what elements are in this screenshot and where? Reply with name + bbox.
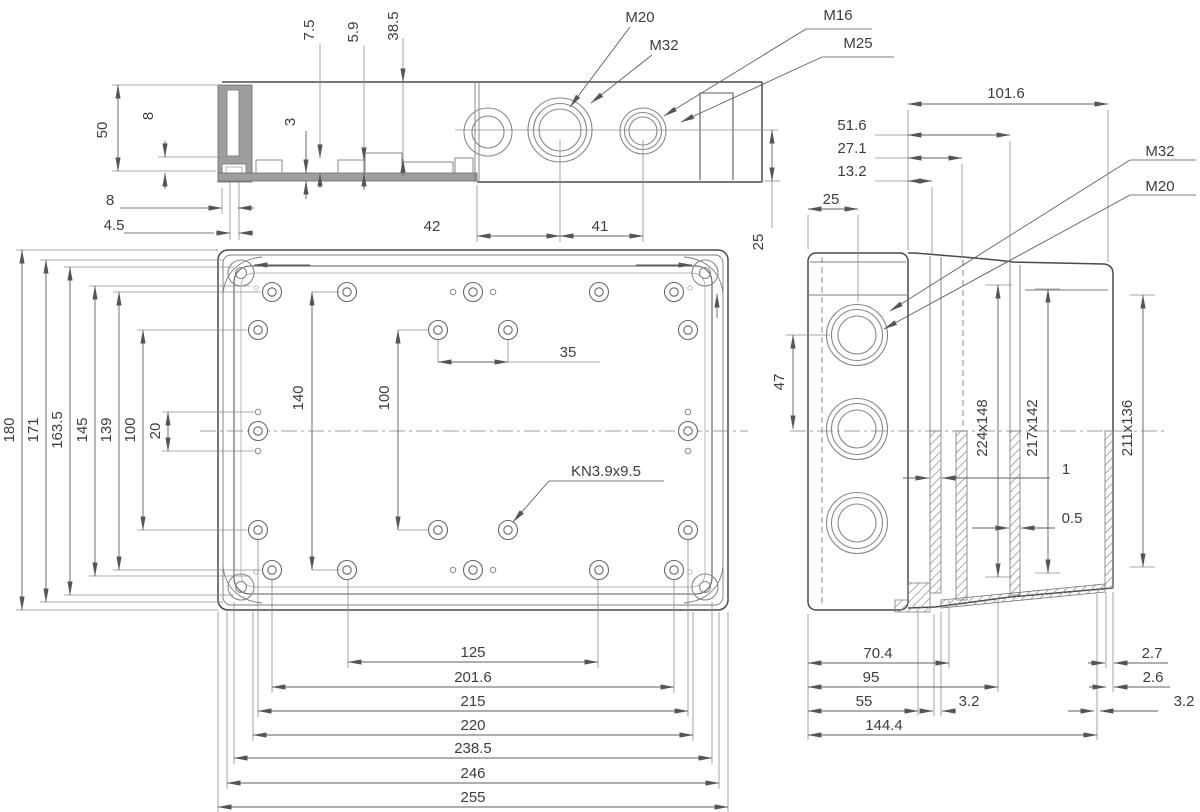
side-view-labels: 101.6 51.6 27.1 13.2 25 M32 M20 47 224x1…	[771, 85, 1194, 734]
dim-139: 139	[98, 417, 115, 442]
dim-25-side: 25	[823, 191, 840, 208]
dim-51-6: 51.6	[837, 117, 866, 134]
m32-side-label: M32	[1145, 143, 1174, 160]
dim-41: 41	[592, 218, 609, 235]
dim-215: 215	[460, 693, 485, 710]
dim-35: 35	[560, 344, 577, 361]
dim-3: 3	[282, 118, 299, 126]
top-view-labels: M20 M32 M16 M25 7.5 5.9 38.5 50 8 3 8 4.…	[94, 7, 873, 250]
dim-211x136: 211x136	[1119, 400, 1136, 456]
dim-100-inner: 100	[376, 385, 393, 410]
dim-163-5: 163.5	[49, 411, 66, 449]
dim-101-6: 101.6	[987, 85, 1025, 102]
dim-7-5: 7.5	[301, 20, 318, 41]
dim-95: 95	[863, 669, 880, 686]
dim-220: 220	[460, 717, 485, 734]
front-view-geometry	[200, 250, 748, 610]
dim-2-7: 2.7	[1142, 645, 1163, 662]
dim-3-2-right: 3.2	[1174, 693, 1195, 710]
dim-224x148: 224x148	[974, 399, 991, 457]
dim-246: 246	[460, 765, 485, 782]
dim-125: 125	[460, 644, 485, 661]
m16-label: M16	[823, 7, 852, 24]
dim-13-2: 13.2	[837, 163, 866, 180]
dim-70-4: 70.4	[863, 645, 892, 662]
dim-2-6: 2.6	[1143, 669, 1164, 686]
dim-217x142: 217x142	[1024, 399, 1041, 457]
dim-20: 20	[147, 423, 164, 440]
dim-38-5: 38.5	[385, 11, 402, 40]
dim-255: 255	[460, 789, 485, 806]
dim-1: 1	[1062, 461, 1070, 478]
m25-label: M25	[843, 35, 872, 52]
dim-201-6: 201.6	[454, 669, 492, 686]
m32-label: M32	[649, 37, 678, 54]
dim-180: 180	[1, 417, 18, 442]
kn-label: KN3.9x9.5	[571, 463, 641, 480]
cable-gland-holes	[827, 305, 888, 554]
dim-238-5: 238.5	[454, 740, 492, 757]
top-view-geometry	[218, 82, 778, 240]
corner-screw-bosses	[228, 260, 718, 600]
dim-8-bottom: 8	[106, 192, 114, 209]
dim-25-top: 25	[750, 234, 767, 251]
m20-side-label: M20	[1145, 178, 1174, 195]
dim-3-2-wall: 3.2	[959, 693, 980, 710]
dim-8-depth: 8	[140, 112, 157, 120]
front-view-labels: 180 171 163.5 145 139 100 20 140 100 35 …	[1, 344, 641, 806]
dim-27-1: 27.1	[837, 140, 866, 157]
dim-171: 171	[25, 417, 42, 442]
dim-100-left: 100	[122, 417, 139, 442]
drawing-canvas: M20 M32 M16 M25 7.5 5.9 38.5 50 8 3 8 4.…	[0, 0, 1200, 812]
dim-50: 50	[94, 122, 111, 139]
dim-144-4: 144.4	[865, 717, 903, 734]
dim-55: 55	[856, 693, 873, 710]
dim-0-5: 0.5	[1062, 510, 1083, 527]
dim-145: 145	[74, 417, 91, 442]
m20-label: M20	[625, 9, 654, 26]
dim-5-9: 5.9	[345, 22, 362, 43]
dim-47: 47	[771, 374, 788, 391]
dim-42: 42	[424, 218, 441, 235]
dim-4-5: 4.5	[104, 217, 125, 234]
technical-drawing-page: M20 M32 M16 M25 7.5 5.9 38.5 50 8 3 8 4.…	[0, 0, 1200, 812]
front-view-dimensions	[16, 250, 728, 812]
dim-140: 140	[290, 385, 307, 410]
